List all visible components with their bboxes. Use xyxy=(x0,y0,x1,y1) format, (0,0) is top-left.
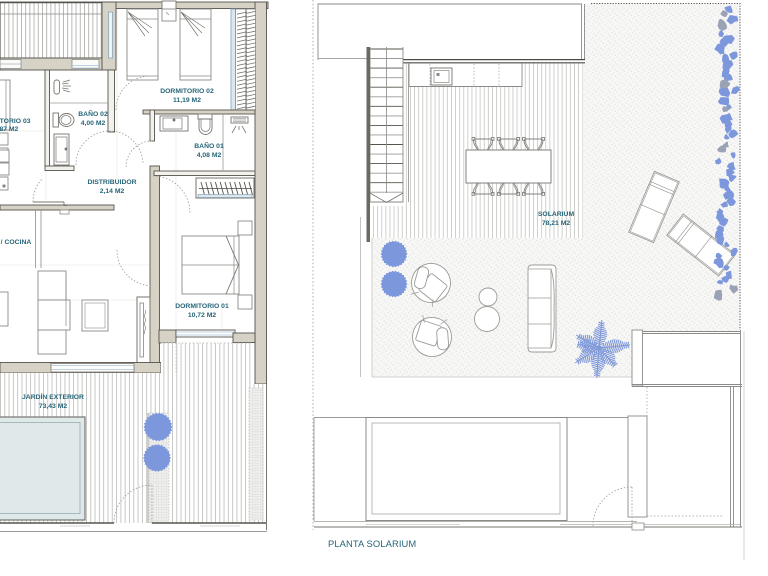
svg-text:2,14 M2: 2,14 M2 xyxy=(100,188,125,195)
svg-text:SALÓN / COCINA: SALÓN / COCINA xyxy=(0,237,31,246)
svg-text:DORMITORIO 03: DORMITORIO 03 xyxy=(0,118,31,125)
svg-text:4,00 M2: 4,00 M2 xyxy=(81,120,106,127)
svg-text:13,87 M2: 13,87 M2 xyxy=(0,126,19,133)
svg-text:78,21 M2: 78,21 M2 xyxy=(542,220,571,227)
svg-text:DORMITORIO 01: DORMITORIO 01 xyxy=(175,303,229,310)
svg-text:DISTRIBUIDOR: DISTRIBUIDOR xyxy=(87,179,136,186)
svg-text:DORMITORIO 02: DORMITORIO 02 xyxy=(160,88,214,95)
svg-text:10,72 M2: 10,72 M2 xyxy=(188,312,217,319)
svg-text:11,19 M2: 11,19 M2 xyxy=(173,97,201,104)
svg-text:4,08 M2: 4,08 M2 xyxy=(197,152,222,159)
svg-text:BAÑO 02: BAÑO 02 xyxy=(78,109,108,118)
svg-text:JARDÍN EXTERIOR: JARDÍN EXTERIOR xyxy=(22,392,84,401)
svg-text:BAÑO 01: BAÑO 01 xyxy=(194,141,224,150)
svg-text:SOLARIUM: SOLARIUM xyxy=(538,211,575,218)
svg-text:PLANTA SOLARIUM: PLANTA SOLARIUM xyxy=(328,538,416,549)
svg-text:73,43 M2: 73,43 M2 xyxy=(39,403,68,410)
